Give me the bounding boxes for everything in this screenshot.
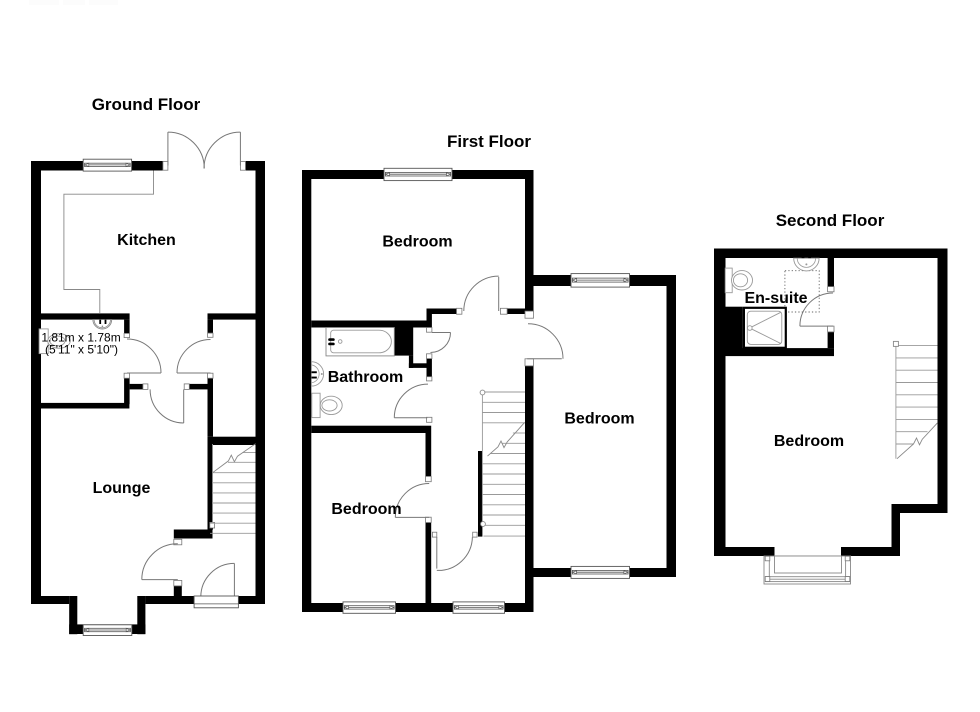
svg-text:Bedroom: Bedroom — [774, 433, 844, 450]
svg-text:First Floor: First Floor — [447, 132, 531, 151]
svg-text:Bedroom: Bedroom — [382, 234, 452, 251]
svg-text:Ground Floor: Ground Floor — [92, 95, 201, 114]
svg-text:Kitchen: Kitchen — [117, 232, 176, 249]
svg-text:Bedroom: Bedroom — [564, 411, 634, 428]
svg-text:Second Floor: Second Floor — [776, 211, 885, 230]
svg-text:(5'11" x 5'10"): (5'11" x 5'10") — [45, 343, 118, 357]
svg-text:En-suite: En-suite — [744, 290, 807, 307]
svg-text:Lounge: Lounge — [93, 480, 151, 497]
svg-text:Bathroom: Bathroom — [328, 369, 404, 386]
svg-text:Bedroom: Bedroom — [331, 501, 401, 518]
